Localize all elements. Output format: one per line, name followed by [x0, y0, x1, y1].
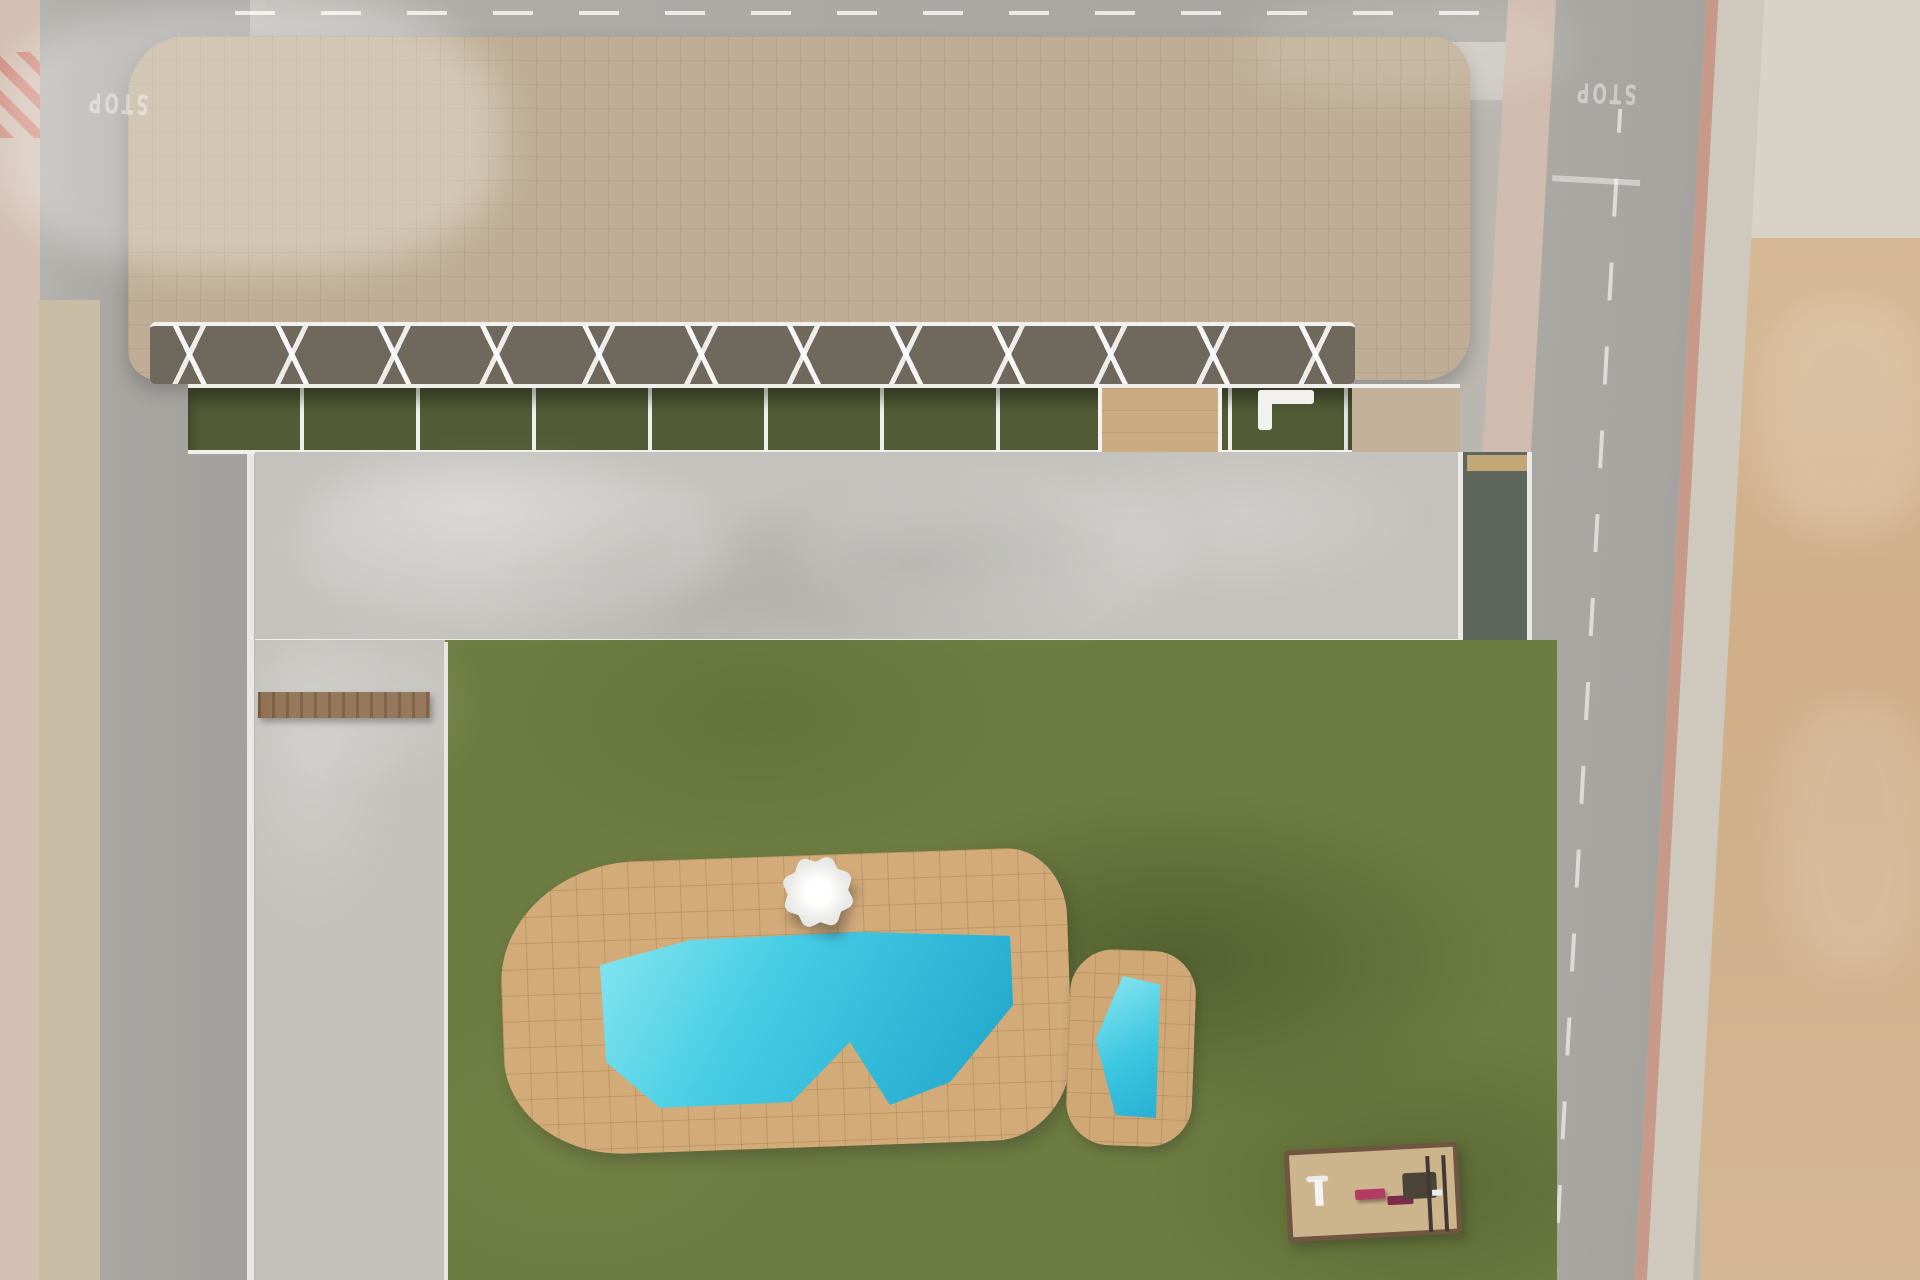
light-patch	[800, 480, 1180, 620]
light-patch	[0, 0, 500, 270]
light-patch	[1780, 700, 1920, 970]
light-patch	[300, 468, 720, 618]
light-patch	[1760, 300, 1920, 530]
light-patch	[260, 640, 455, 770]
light-patch	[1250, 0, 1570, 95]
aerial-render-canvas: STOP STOP	[0, 0, 1920, 1280]
scene-objects-layer	[0, 0, 1920, 1280]
